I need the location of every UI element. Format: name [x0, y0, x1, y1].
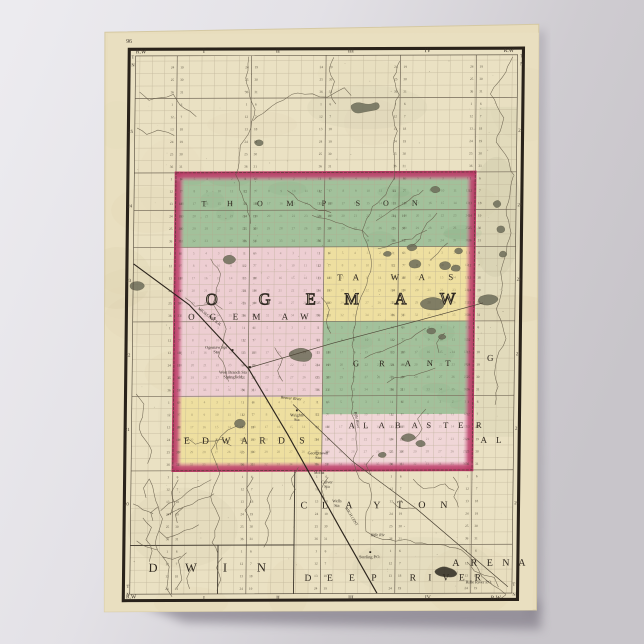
- svg-text:R.W: R.W: [504, 48, 515, 54]
- svg-text:31: 31: [179, 165, 183, 169]
- svg-text:25: 25: [242, 227, 246, 231]
- svg-text:19: 19: [479, 139, 483, 143]
- svg-text:19: 19: [328, 288, 332, 292]
- svg-text:25: 25: [389, 375, 393, 379]
- svg-text:25: 25: [240, 525, 244, 529]
- svg-text:19: 19: [403, 214, 407, 218]
- svg-text:30: 30: [474, 524, 478, 528]
- svg-text:A: A: [395, 289, 407, 308]
- svg-text:31: 31: [326, 462, 330, 466]
- svg-text:12: 12: [240, 562, 244, 566]
- svg-text:30: 30: [327, 375, 331, 379]
- svg-text:29: 29: [191, 301, 195, 305]
- svg-text:13: 13: [465, 275, 469, 279]
- svg-text:N: N: [427, 358, 433, 368]
- svg-text:17: 17: [339, 425, 343, 429]
- svg-text:12: 12: [467, 338, 471, 342]
- svg-text:24: 24: [390, 288, 394, 292]
- svg-text:19: 19: [398, 586, 402, 590]
- svg-text:16: 16: [278, 350, 282, 354]
- svg-text:27: 27: [291, 301, 295, 305]
- svg-text:28: 28: [202, 450, 206, 454]
- svg-text:31: 31: [253, 388, 257, 392]
- svg-text:29: 29: [413, 449, 417, 453]
- svg-text:33: 33: [277, 462, 281, 466]
- svg-text:11: 11: [228, 413, 232, 417]
- svg-text:34: 34: [217, 239, 221, 243]
- svg-text:25: 25: [169, 227, 173, 231]
- svg-text:17: 17: [193, 202, 197, 206]
- svg-text:12: 12: [242, 264, 246, 268]
- svg-text:10: 10: [290, 338, 294, 342]
- svg-text:24: 24: [465, 512, 469, 516]
- svg-text:19: 19: [254, 289, 258, 293]
- svg-text:10: 10: [367, 189, 371, 193]
- svg-text:12: 12: [465, 561, 469, 565]
- svg-text:33: 33: [205, 239, 209, 243]
- svg-text:27: 27: [289, 450, 293, 454]
- svg-text:35: 35: [452, 313, 456, 317]
- svg-text:13: 13: [464, 350, 468, 354]
- svg-text:17: 17: [414, 350, 418, 354]
- svg-text:22: 22: [289, 437, 293, 441]
- svg-text:22: 22: [516, 352, 521, 357]
- svg-text:12: 12: [390, 263, 394, 267]
- svg-text:25: 25: [394, 77, 398, 81]
- svg-text:32: 32: [340, 313, 344, 317]
- svg-text:16: 16: [428, 201, 432, 205]
- svg-text:IV: IV: [425, 595, 431, 601]
- svg-text:15: 15: [366, 276, 370, 280]
- svg-text:18: 18: [249, 574, 253, 578]
- svg-text:R: R: [470, 558, 477, 569]
- svg-text:36: 36: [465, 536, 469, 540]
- svg-text:16: 16: [277, 425, 281, 429]
- svg-text:24: 24: [393, 139, 397, 143]
- svg-text:22: 22: [126, 353, 131, 358]
- svg-text:30: 30: [475, 449, 479, 453]
- svg-text:19: 19: [478, 214, 482, 218]
- svg-text:16: 16: [428, 276, 432, 280]
- svg-text:31: 31: [179, 314, 183, 318]
- svg-text:30: 30: [179, 301, 183, 305]
- svg-text:27: 27: [439, 375, 443, 379]
- svg-text:O: O: [188, 312, 195, 322]
- svg-text:36: 36: [389, 537, 393, 541]
- svg-text:31: 31: [477, 313, 481, 317]
- svg-text:19: 19: [328, 140, 332, 144]
- svg-text:19: 19: [179, 289, 183, 293]
- svg-text:19: 19: [479, 65, 483, 69]
- svg-text:15: 15: [217, 202, 221, 206]
- svg-text:30: 30: [179, 152, 183, 156]
- svg-text:R: R: [259, 437, 266, 447]
- svg-text:27: 27: [216, 376, 220, 380]
- svg-text:20: 20: [267, 214, 271, 218]
- svg-text:32: 32: [413, 462, 417, 466]
- svg-text:20: 20: [341, 214, 345, 218]
- svg-text:21: 21: [278, 363, 282, 367]
- svg-text:31: 31: [402, 313, 406, 317]
- svg-text:30: 30: [254, 226, 258, 230]
- svg-text:13: 13: [314, 574, 318, 578]
- svg-text:33: 33: [277, 388, 281, 392]
- svg-text:18: 18: [404, 201, 408, 205]
- svg-text:23: 23: [126, 279, 131, 284]
- svg-text:A: A: [353, 272, 360, 282]
- svg-text:23: 23: [230, 214, 234, 218]
- svg-text:36: 36: [463, 462, 467, 466]
- svg-text:Sta: Sta: [213, 349, 219, 354]
- svg-text:13: 13: [469, 127, 473, 131]
- svg-text:15: 15: [215, 425, 219, 429]
- svg-text:24: 24: [466, 437, 470, 441]
- svg-text:24: 24: [389, 512, 393, 516]
- svg-text:17: 17: [340, 350, 344, 354]
- svg-text:25: 25: [390, 301, 394, 305]
- svg-text:S: S: [299, 436, 304, 446]
- svg-text:24: 24: [465, 213, 469, 217]
- svg-text:33: 33: [351, 462, 355, 466]
- svg-text:35: 35: [378, 239, 382, 243]
- svg-text:30: 30: [324, 524, 328, 528]
- svg-text:18: 18: [476, 350, 480, 354]
- svg-text:D: D: [202, 437, 209, 447]
- svg-text:B: B: [395, 420, 401, 430]
- svg-text:30: 30: [399, 524, 403, 528]
- svg-text:13: 13: [465, 574, 469, 578]
- svg-text:O: O: [383, 199, 389, 208]
- svg-text:26: 26: [302, 375, 306, 379]
- svg-text:30: 30: [175, 525, 179, 529]
- svg-text:30: 30: [180, 78, 184, 82]
- svg-text:E: E: [459, 573, 465, 583]
- svg-text:34: 34: [290, 388, 294, 392]
- svg-text:31: 31: [478, 238, 482, 242]
- svg-text:29: 29: [414, 375, 418, 379]
- svg-text:13: 13: [389, 574, 393, 578]
- svg-text:O: O: [418, 500, 425, 511]
- svg-text:12: 12: [389, 412, 393, 416]
- svg-text:15: 15: [365, 350, 369, 354]
- svg-text:25: 25: [166, 525, 170, 529]
- svg-text:26: 26: [227, 450, 231, 454]
- svg-text:30: 30: [180, 227, 184, 231]
- svg-text:36: 36: [245, 90, 249, 94]
- svg-text:29: 29: [265, 375, 269, 379]
- svg-text:31: 31: [478, 164, 482, 168]
- svg-text:21: 21: [428, 214, 432, 218]
- svg-text:36: 36: [241, 313, 245, 317]
- svg-text:18: 18: [253, 351, 257, 355]
- svg-text:25: 25: [244, 152, 248, 156]
- svg-text:31: 31: [324, 537, 328, 541]
- svg-text:A: A: [481, 435, 488, 445]
- svg-text:12: 12: [169, 264, 173, 268]
- svg-text:33: 33: [353, 313, 357, 317]
- svg-text:18: 18: [254, 127, 258, 131]
- svg-text:11: 11: [377, 412, 381, 416]
- svg-text:18: 18: [403, 276, 407, 280]
- svg-text:30: 30: [476, 375, 480, 379]
- svg-text:18: 18: [178, 425, 182, 429]
- svg-text:25: 25: [389, 524, 393, 528]
- svg-text:30: 30: [477, 300, 481, 304]
- svg-text:III: III: [348, 595, 354, 601]
- svg-text:31: 31: [329, 239, 333, 243]
- svg-text:31: 31: [327, 388, 331, 392]
- svg-text:24: 24: [169, 215, 173, 219]
- svg-text:31: 31: [329, 90, 333, 94]
- svg-text:16: 16: [203, 425, 207, 429]
- svg-text:12: 12: [319, 115, 323, 119]
- svg-text:12: 12: [165, 562, 169, 566]
- svg-text:26: 26: [229, 301, 233, 305]
- svg-text:29: 29: [190, 450, 194, 454]
- svg-text:36: 36: [171, 90, 175, 94]
- svg-text:18: 18: [401, 425, 405, 429]
- svg-text:T: T: [337, 272, 343, 282]
- svg-text:30: 30: [177, 450, 181, 454]
- svg-text:19: 19: [475, 437, 479, 441]
- svg-text:31: 31: [254, 239, 258, 243]
- svg-text:16: 16: [427, 350, 431, 354]
- svg-text:19: 19: [255, 65, 259, 69]
- svg-text:14: 14: [379, 201, 383, 205]
- svg-text:24: 24: [464, 362, 468, 366]
- svg-text:S: S: [448, 272, 453, 282]
- svg-text:10: 10: [365, 338, 369, 342]
- svg-text:28: 28: [279, 226, 283, 230]
- svg-text:30: 30: [253, 375, 257, 379]
- svg-text:II: II: [276, 595, 280, 601]
- svg-text:13: 13: [466, 201, 470, 205]
- svg-text:15: 15: [217, 276, 221, 280]
- svg-text:11: 11: [230, 189, 234, 193]
- svg-text:Sta: Sta: [294, 417, 300, 422]
- svg-text:18: 18: [329, 201, 333, 205]
- svg-text:S: S: [426, 420, 431, 430]
- svg-text:31: 31: [401, 462, 405, 466]
- svg-text:22: 22: [292, 214, 296, 218]
- svg-text:25: 25: [315, 524, 319, 528]
- svg-text:L: L: [496, 435, 502, 445]
- svg-text:18: 18: [477, 276, 481, 280]
- svg-text:24: 24: [240, 363, 244, 367]
- svg-text:22: 22: [365, 363, 369, 367]
- svg-text:I: I: [203, 49, 205, 55]
- svg-text:24: 24: [314, 587, 318, 591]
- svg-text:25: 25: [245, 78, 249, 82]
- svg-text:34: 34: [289, 462, 293, 466]
- svg-text:34: 34: [440, 313, 444, 317]
- svg-text:28: 28: [203, 376, 207, 380]
- svg-text:18: 18: [176, 500, 180, 504]
- svg-text:Sta: Sta: [334, 503, 340, 508]
- svg-text:19: 19: [329, 214, 333, 218]
- svg-text:12: 12: [464, 338, 468, 342]
- svg-text:13: 13: [242, 202, 246, 206]
- svg-text:13: 13: [465, 499, 469, 503]
- svg-text:33: 33: [353, 239, 357, 243]
- svg-text:24: 24: [244, 140, 248, 144]
- svg-text:W: W: [440, 289, 456, 308]
- svg-text:E: E: [487, 558, 493, 569]
- svg-text:23: 23: [451, 362, 455, 366]
- svg-text:36: 36: [464, 313, 468, 317]
- svg-text:R.W: R.W: [136, 49, 147, 55]
- svg-text:21: 21: [426, 437, 430, 441]
- svg-text:30: 30: [403, 226, 407, 230]
- svg-text:12: 12: [391, 189, 395, 193]
- svg-text:I: I: [428, 574, 431, 584]
- svg-text:10: 10: [292, 189, 296, 193]
- svg-text:36: 36: [244, 165, 248, 169]
- svg-text:14: 14: [302, 425, 306, 429]
- svg-text:26: 26: [451, 449, 455, 453]
- svg-text:14: 14: [228, 351, 232, 355]
- svg-text:13: 13: [390, 350, 394, 354]
- svg-text:R.W: R.W: [491, 595, 502, 601]
- svg-text:34: 34: [364, 388, 368, 392]
- svg-text:13: 13: [391, 201, 395, 205]
- svg-text:29: 29: [341, 226, 345, 230]
- svg-text:12: 12: [469, 189, 473, 193]
- svg-text:18: 18: [328, 276, 332, 280]
- svg-text:12: 12: [316, 263, 320, 267]
- svg-text:19: 19: [175, 587, 179, 591]
- svg-text:16: 16: [203, 351, 207, 355]
- svg-text:35: 35: [377, 387, 381, 391]
- svg-text:31: 31: [254, 90, 258, 94]
- svg-text:31: 31: [175, 537, 179, 541]
- svg-text:P: P: [371, 574, 376, 584]
- svg-text:12: 12: [170, 115, 174, 119]
- svg-text:32: 32: [265, 388, 269, 392]
- svg-text:36: 36: [467, 387, 471, 391]
- svg-text:32: 32: [341, 239, 345, 243]
- svg-text:13: 13: [468, 276, 472, 280]
- svg-text:21: 21: [279, 214, 283, 218]
- svg-text:23: 23: [517, 278, 522, 283]
- svg-text:36: 36: [167, 463, 171, 467]
- svg-text:30: 30: [329, 77, 333, 81]
- svg-text:22: 22: [290, 363, 294, 367]
- svg-text:22: 22: [216, 363, 220, 367]
- svg-text:33: 33: [428, 238, 432, 242]
- svg-text:24: 24: [389, 363, 393, 367]
- svg-text:16: 16: [204, 276, 208, 280]
- svg-text:23: 23: [228, 363, 232, 367]
- svg-text:30: 30: [328, 301, 332, 305]
- svg-text:34: 34: [215, 462, 219, 466]
- svg-text:28: 28: [428, 226, 432, 230]
- svg-text:35: 35: [376, 462, 380, 466]
- svg-text:19: 19: [474, 586, 478, 590]
- svg-text:34: 34: [364, 462, 368, 466]
- svg-text:10: 10: [366, 263, 370, 267]
- svg-text:18: 18: [327, 350, 331, 354]
- svg-text:13: 13: [469, 201, 473, 205]
- svg-text:E: E: [327, 574, 333, 584]
- svg-text:36: 36: [314, 462, 318, 466]
- svg-text:13: 13: [389, 425, 393, 429]
- svg-text:27: 27: [366, 226, 370, 230]
- svg-text:IV: IV: [425, 48, 432, 54]
- svg-text:11: 11: [228, 338, 232, 342]
- svg-text:R: R: [379, 358, 385, 368]
- svg-text:25: 25: [391, 226, 395, 230]
- svg-text:14: 14: [452, 350, 456, 354]
- svg-text:18: 18: [180, 202, 184, 206]
- svg-text:12: 12: [167, 413, 171, 417]
- svg-text:24: 24: [463, 437, 467, 441]
- svg-text:13: 13: [245, 127, 249, 131]
- svg-text:12: 12: [168, 339, 172, 343]
- svg-text:31: 31: [402, 387, 406, 391]
- svg-text:28: 28: [278, 301, 282, 305]
- svg-text:Moffat: Moffat: [314, 471, 325, 475]
- svg-text:12: 12: [242, 189, 246, 193]
- svg-text:W: W: [185, 561, 197, 575]
- svg-text:12: 12: [390, 338, 394, 342]
- svg-text:O: O: [257, 199, 263, 208]
- svg-text:15: 15: [438, 424, 442, 428]
- svg-text:28: 28: [205, 227, 209, 231]
- svg-text:11: 11: [452, 338, 456, 342]
- svg-text:31: 31: [180, 239, 184, 243]
- svg-text:19: 19: [329, 65, 333, 69]
- svg-text:33: 33: [352, 388, 356, 392]
- svg-text:33: 33: [202, 463, 206, 467]
- svg-text:18: 18: [398, 574, 402, 578]
- svg-text:T: T: [513, 582, 516, 587]
- svg-text:11: 11: [453, 263, 457, 267]
- svg-text:36: 36: [393, 164, 397, 168]
- svg-text:24: 24: [240, 587, 244, 591]
- svg-text:26: 26: [377, 375, 381, 379]
- svg-text:34: 34: [365, 313, 369, 317]
- svg-text:O: O: [206, 290, 218, 309]
- svg-text:26: 26: [451, 375, 455, 379]
- svg-text:I: I: [223, 561, 227, 575]
- svg-text:25: 25: [319, 152, 323, 156]
- svg-text:12: 12: [466, 189, 470, 193]
- svg-text:36: 36: [389, 387, 393, 391]
- svg-text:19: 19: [476, 363, 480, 367]
- svg-text:10: 10: [217, 264, 221, 268]
- svg-text:22: 22: [291, 288, 295, 292]
- svg-text:23: 23: [376, 437, 380, 441]
- svg-text:34: 34: [440, 238, 444, 242]
- svg-text:31: 31: [249, 537, 253, 541]
- svg-text:36: 36: [468, 238, 472, 242]
- svg-text:36: 36: [465, 238, 469, 242]
- svg-text:24: 24: [391, 214, 395, 218]
- svg-text:19: 19: [399, 512, 403, 516]
- svg-text:24: 24: [166, 513, 170, 517]
- svg-text:30: 30: [254, 152, 258, 156]
- svg-text:25: 25: [167, 450, 171, 454]
- svg-text:29: 29: [415, 300, 419, 304]
- svg-text:34: 34: [438, 462, 442, 466]
- svg-text:28: 28: [277, 450, 281, 454]
- svg-text:14: 14: [304, 201, 308, 205]
- svg-text:31: 31: [252, 462, 256, 466]
- svg-text:23: 23: [453, 213, 457, 217]
- svg-text:25: 25: [170, 152, 174, 156]
- svg-text:W: W: [391, 272, 400, 282]
